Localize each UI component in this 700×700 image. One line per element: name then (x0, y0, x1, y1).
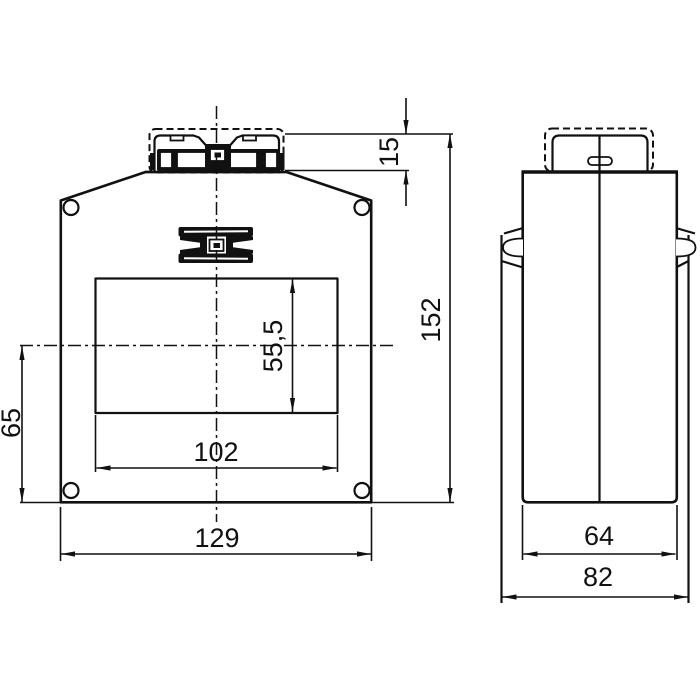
drawing-background (0, 0, 700, 700)
terminal-screw-inner-left (177, 152, 208, 168)
dim-label-side-overall-width: 82 (583, 562, 613, 592)
clip-right-spring-slot (676, 239, 696, 257)
terminal-end-bar-left (150, 153, 155, 170)
technical-drawing-canvas: 15 152 55,5 65 102 (0, 0, 700, 700)
dim-label-total-height: 152 (416, 297, 446, 342)
dim-label-terminal-height: 15 (374, 137, 404, 167)
terminal-screw-outer-left (160, 152, 172, 168)
dim-label-window-width: 102 (193, 437, 238, 467)
terminal-screw-outer-right (265, 152, 277, 168)
dim-label-window-height: 55,5 (258, 320, 288, 373)
terminal-end-bar-right (280, 153, 285, 170)
terminal-center-screw (215, 153, 222, 158)
dim-label-side-body-width: 64 (584, 521, 614, 551)
terminal-top-notch-right (243, 136, 256, 141)
clip-left-spring-slot (503, 239, 523, 257)
terminal-top-notch-left (171, 136, 184, 141)
dim-label-axis-to-bottom: 65 (0, 408, 26, 438)
dimensional-drawing: 15 152 55,5 65 102 (0, 0, 700, 700)
dim-label-overall-width: 129 (194, 523, 239, 553)
